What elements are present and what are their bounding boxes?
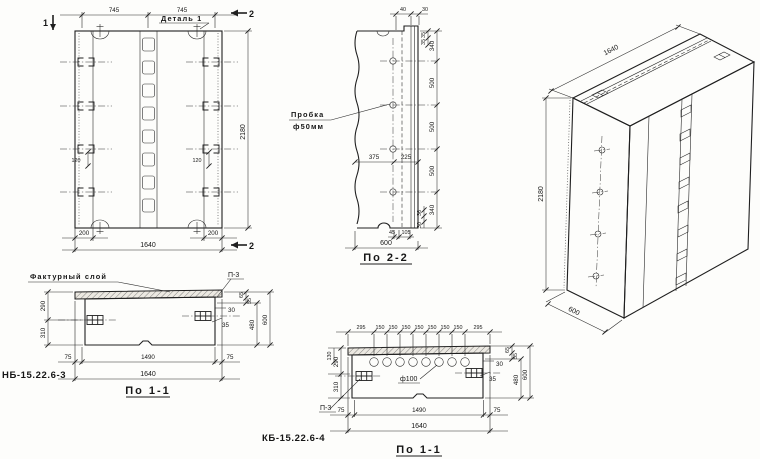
dim-label: 500 — [429, 77, 436, 88]
dim-label: 1490 — [412, 407, 426, 414]
dim-label: 30 — [228, 307, 235, 314]
dim-label: 340 — [429, 204, 436, 215]
dim-label: 375 — [369, 154, 380, 161]
dim-label: 310 — [40, 327, 47, 338]
dim-label: 150 — [428, 325, 437, 331]
side-outline — [355, 26, 418, 228]
dim-label: 2180 — [538, 186, 545, 202]
dim-label: 600 — [262, 314, 269, 325]
lifting-pockets — [91, 24, 206, 234]
dim-label: 745 — [177, 7, 188, 14]
dim-label: 45 — [389, 230, 395, 236]
dim-label: 75 — [494, 407, 501, 414]
dim-label: 150 — [376, 325, 385, 331]
dim-label: 1640 — [140, 371, 156, 378]
dim-label: 1640 — [411, 423, 427, 430]
anchor-loops — [60, 58, 238, 196]
dim-label: 65 — [505, 347, 511, 353]
section-view-nb3: Фактурный слой П-3 290 310 65 55 30 35 4… — [2, 272, 274, 397]
dim-label: 225 — [401, 154, 412, 161]
dim-label: 2180 — [240, 124, 247, 140]
section-mark-2-top: 2 — [249, 9, 254, 19]
dim-label: 105 — [402, 230, 411, 236]
dim-label: 150 — [454, 325, 463, 331]
view-title-po-1-1-mid: По 1-1 — [396, 444, 442, 456]
plug-label-line2: ф50мм — [293, 122, 324, 131]
dim-label: 30 — [496, 361, 503, 368]
dim-label: 600 — [567, 306, 581, 318]
dim-label: 1490 — [141, 354, 155, 361]
side-dimensions: 40 30 340 500 500 500 340 35 35 36 30 37… — [345, 7, 442, 251]
dim-label: 1640 — [140, 242, 156, 249]
panel-drawing-svg: 745 745 120 120 200 200 1640 2180 Деталь… — [0, 0, 760, 459]
dim-label: 150 — [441, 325, 450, 331]
dim-label: 1640 — [603, 44, 620, 57]
dim-label: 150 — [415, 325, 424, 331]
dim-label: 65 — [239, 292, 245, 298]
detail-ref-label: П-3 — [228, 272, 239, 279]
dim-label: 290 — [40, 300, 47, 311]
front-elevation-view: 745 745 120 120 200 200 1640 2180 Деталь… — [43, 7, 254, 253]
dim-label: 150 — [389, 325, 398, 331]
front-dimensions: 745 745 120 120 200 200 1640 2180 — [60, 7, 252, 253]
dim-label: 500 — [429, 165, 436, 176]
sec4-body — [335, 353, 502, 398]
plug-callout: Пробка ф50мм — [289, 104, 390, 131]
dim-label: 295 — [474, 325, 483, 331]
dim-label: 745 — [109, 7, 120, 14]
dim-label: 55 — [513, 353, 519, 359]
dim-label: 310 — [333, 381, 340, 392]
center-key-strip — [140, 31, 157, 228]
facing-layer-label: Фактурный слой — [30, 272, 107, 281]
dim-label: 290 — [333, 356, 340, 367]
dim-label: 120 — [72, 158, 81, 164]
section-view-kb4: ф100 П-3 295 150 150 150 150 150 150 150… — [262, 325, 534, 456]
dim-label: 75 — [227, 354, 234, 361]
dim-label: 30 — [417, 222, 423, 228]
dim-label: 40 — [400, 7, 406, 13]
isometric-view: 1640 2180 600 — [538, 24, 754, 334]
dim-label: 75 — [65, 354, 72, 361]
dim-label: 150 — [402, 325, 411, 331]
dim-label: 35 — [222, 322, 229, 329]
dim-label: 200 — [208, 230, 219, 237]
dim-label: 35 — [421, 39, 427, 45]
iso-edge-holes — [588, 136, 610, 288]
sec3-dimensions: 290 310 65 55 30 35 480 600 75 1490 75 1… — [40, 289, 274, 381]
dim-label: 36 — [417, 210, 423, 216]
sec4-dimensions: 295 150 150 150 150 150 150 150 295 130 … — [327, 325, 534, 434]
panel-code-kb4: КБ-15.22.6-4 — [262, 433, 325, 444]
dim-label: 55 — [247, 298, 253, 304]
view-title-po-2-2: По 2-2 — [363, 252, 409, 264]
detail-label: Деталь 1 — [161, 14, 202, 23]
iso-dimensions: 1640 2180 600 — [538, 24, 700, 334]
dim-label: 500 — [429, 121, 436, 132]
panel-code-nb3: НБ-15.22.6-3 — [2, 370, 66, 381]
dim-label: 340 — [429, 40, 436, 51]
iso-body — [564, 34, 754, 318]
dim-label: 75 — [338, 407, 345, 414]
dim-label: 35 — [421, 32, 427, 38]
dim-label: 120 — [193, 158, 202, 164]
sec3-facing-callout: Фактурный слой — [28, 272, 170, 292]
dim-label: 600 — [380, 240, 392, 247]
dim-label: 295 — [357, 325, 366, 331]
dim-label: 480 — [249, 319, 256, 330]
iso-key-strip — [676, 94, 692, 291]
dim-label: 200 — [79, 230, 90, 237]
view-title-po-1-1-left: По 1-1 — [125, 385, 171, 397]
plug-label-line1: Пробка — [291, 110, 324, 119]
sec4-hole-callout: ф100 — [398, 365, 437, 383]
dim-label: 600 — [522, 369, 529, 380]
detail-callout: Деталь 1 — [159, 14, 209, 29]
drawing-sheet: 745 745 120 120 200 200 1640 2180 Деталь… — [0, 0, 760, 459]
detail-ref-label: П-3 — [320, 405, 331, 412]
hole-diameter-label: ф100 — [400, 376, 418, 383]
section-mark-1: 1 — [43, 18, 48, 28]
dim-label: 480 — [513, 374, 520, 385]
panel-outline — [75, 31, 222, 228]
side-section-view: Пробка ф50мм 40 30 340 500 500 500 340 3… — [289, 7, 442, 264]
section-mark-2-bottom: 2 — [249, 241, 254, 251]
sec3-body — [58, 297, 240, 345]
dim-label: 30 — [422, 7, 428, 13]
